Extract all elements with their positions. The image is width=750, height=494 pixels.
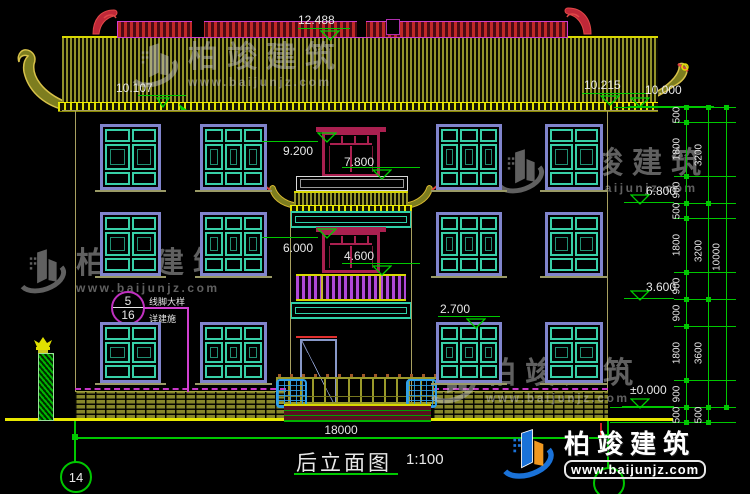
dim-text: 10000	[712, 243, 723, 271]
window	[545, 322, 603, 383]
level-symbol-icon	[317, 130, 337, 141]
callout-sheet: 16	[121, 309, 134, 321]
window-sill	[540, 190, 608, 192]
level-text-first_floor_window_head: 2.700	[440, 302, 470, 316]
lamp-post	[38, 353, 54, 421]
dim-text: 1800	[672, 234, 683, 256]
detail-callout: 5 16	[111, 291, 145, 325]
lamp-post-cap-icon	[28, 336, 58, 354]
level-symbol-icon	[630, 288, 650, 299]
window	[545, 212, 603, 276]
entry-door-lintel	[296, 336, 337, 338]
level-line-tower_mid_door_head	[262, 237, 318, 238]
watermark-url: www.baijunjz.com	[188, 75, 344, 89]
level-text-tower_mid_door_head: 6.000	[283, 241, 313, 255]
dim-tick	[684, 120, 689, 125]
window-sill	[431, 383, 507, 385]
level-text-left_roof: 10.107	[116, 81, 153, 95]
dim-text: 900	[672, 277, 683, 294]
ridge-gap	[357, 20, 366, 37]
dim-tick	[684, 324, 689, 329]
watermark: 柏竣建筑 www.baijunjz.com	[128, 40, 344, 92]
dim-tick	[724, 105, 729, 110]
window	[436, 124, 502, 190]
dim-text: 3200	[694, 240, 705, 262]
ridge-finial-right-icon	[560, 4, 594, 36]
cad-drawing-canvas: 柏竣建筑 www.baijunjz.com 柏竣建筑 www.baijunjz.…	[0, 0, 750, 494]
dim-tick	[684, 420, 689, 425]
dim-tick	[684, 105, 689, 110]
dim-text: 500	[672, 406, 683, 423]
dim-chain-line	[708, 107, 709, 422]
base-molding-dashed	[75, 388, 286, 390]
window	[100, 212, 161, 276]
tower-balcony-railing	[296, 274, 406, 301]
window-sill	[95, 383, 166, 385]
grid-bubble-label: 14	[69, 470, 83, 485]
level-symbol-icon	[317, 226, 337, 237]
roof-ridge	[117, 21, 568, 38]
dim-tick	[706, 201, 711, 206]
window	[200, 212, 267, 276]
tower-lintel-band	[290, 211, 412, 228]
watermark-url: www.baijunjz.com	[486, 391, 642, 405]
level-symbol-icon	[320, 28, 340, 39]
level-text-ground: ±0.000	[630, 383, 667, 397]
level-symbol-icon	[630, 95, 650, 106]
window	[200, 322, 267, 383]
window	[436, 322, 502, 383]
watermark-logo-icon	[16, 246, 68, 298]
window	[100, 124, 161, 190]
level-symbol-icon	[600, 93, 620, 104]
dim-text: 900	[672, 304, 683, 321]
dim-text: 1800	[672, 342, 683, 364]
tower-lintel-band	[290, 302, 412, 319]
callout-number: 5	[125, 295, 132, 307]
level-text-ridge: 12.488	[298, 13, 335, 27]
level-text-eave: 10.000	[645, 83, 682, 97]
level-text-right_eave_tip: 10.215	[584, 78, 621, 92]
title-underline	[294, 473, 398, 475]
window-sill	[431, 276, 507, 278]
dim-tick	[684, 297, 689, 302]
dim-text: 500	[672, 106, 683, 123]
window-sill	[95, 190, 166, 192]
dim-tick	[684, 270, 689, 275]
dim-tick	[724, 405, 729, 410]
window-sill	[540, 383, 608, 385]
callout-divider	[113, 307, 143, 308]
dim-tick	[706, 297, 711, 302]
callout-leader	[143, 307, 188, 309]
level-text-tower_mid_door_sill: 4.600	[344, 249, 374, 263]
dim-chain-line	[686, 107, 687, 422]
dim-text: 500	[694, 406, 705, 423]
dim-tick	[684, 405, 689, 410]
callout-leader	[187, 307, 189, 392]
dim-tick	[684, 201, 689, 206]
level-symbol-icon	[372, 167, 392, 178]
dim-chain-line	[726, 107, 727, 407]
window-sill	[540, 276, 608, 278]
dim-text: 3600	[694, 342, 705, 364]
brand-logo-icon	[498, 426, 556, 484]
dim-tick	[706, 420, 711, 425]
drawing-scale: 1:100	[406, 451, 444, 468]
dim-text: 900	[672, 385, 683, 402]
level-symbol-icon	[630, 396, 650, 407]
ridge-box	[386, 19, 400, 35]
window	[436, 212, 502, 276]
leader-arrow-icon	[178, 98, 188, 106]
window-sill	[95, 276, 166, 278]
ridge-finial-left-icon	[90, 6, 120, 36]
dim-text: 900	[672, 181, 683, 198]
level-symbol-icon	[156, 95, 170, 106]
dim-tick	[684, 378, 689, 383]
level-symbol-icon	[466, 316, 486, 327]
level-symbol-icon	[630, 192, 650, 203]
dim-text: 500	[672, 202, 683, 219]
grid-line-left	[74, 421, 76, 463]
window-sill	[195, 276, 272, 278]
watermark-url: www.baijunjz.com	[76, 281, 232, 295]
brick-base-left	[75, 391, 286, 420]
level-line-tower_top_door_head	[262, 141, 318, 142]
level-symbol-icon	[372, 263, 392, 274]
window-sill	[431, 190, 507, 192]
dim-text: 1800	[672, 138, 683, 160]
entry-steps	[284, 404, 431, 422]
brand-url: www.baijunjz.com	[564, 460, 706, 479]
dim-tick	[684, 174, 689, 179]
dim-tick	[706, 105, 711, 110]
brand-name: 柏竣建筑	[564, 431, 706, 457]
window-sill	[195, 190, 272, 192]
window	[545, 124, 603, 190]
brand-logo: 柏竣建筑 www.baijunjz.com	[498, 426, 706, 484]
ridge-gap	[192, 20, 204, 37]
dim-tick	[684, 216, 689, 221]
window-sill	[195, 383, 272, 385]
watermark-name: 柏竣建筑	[188, 43, 344, 73]
window	[100, 322, 161, 383]
dim-tick	[706, 405, 711, 410]
grid-bubble-14: 14	[60, 461, 92, 493]
dim-text-18000: 18000	[324, 423, 357, 437]
eave-bottom-line	[62, 110, 658, 111]
level-text-tower_top_door_head: 9.200	[283, 144, 313, 158]
window	[200, 124, 267, 190]
dim-text: 3200	[694, 144, 705, 166]
